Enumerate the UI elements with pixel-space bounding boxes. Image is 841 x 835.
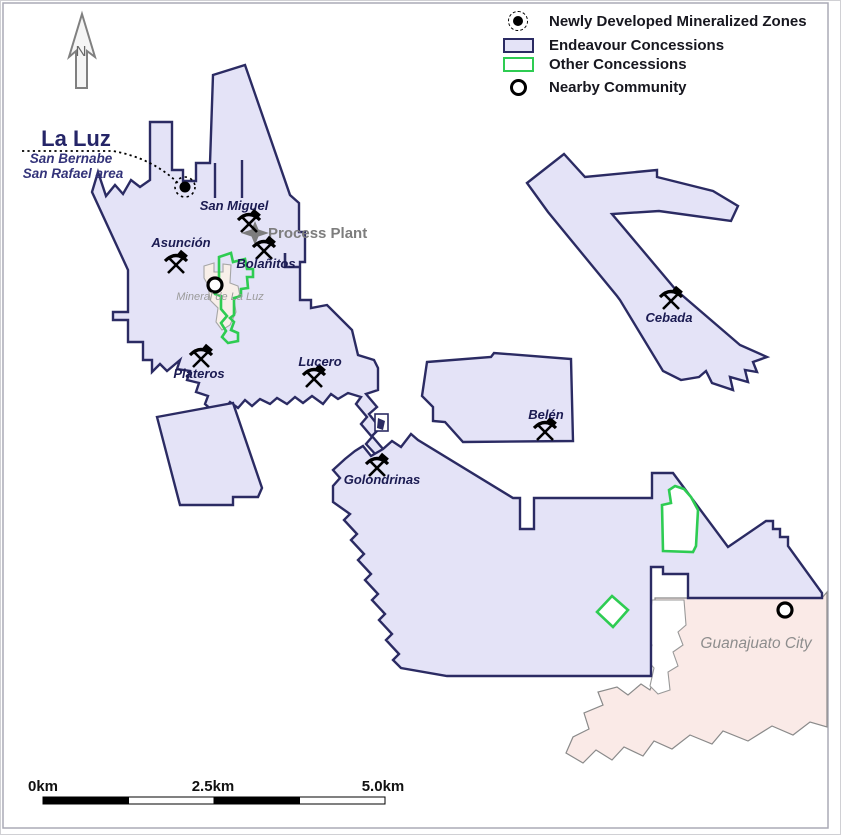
scale-label-mid: 2.5km — [192, 778, 235, 795]
mine-label-asuncion: Asunción — [150, 235, 210, 250]
endeavour-concession-parallelogram — [157, 403, 262, 505]
mine-label-golondrinas: Golondrinas — [344, 472, 421, 487]
mine-label-bolanitos: Bolañitos — [236, 256, 295, 271]
mineralized-zone-icon — [508, 11, 528, 31]
community-label-mineral-de-la-luz: Mineral de La Luz — [176, 291, 264, 303]
community-marker-mineral-de-la-luz — [208, 278, 222, 292]
other-swatch-icon — [503, 57, 534, 72]
community-swatch-icon — [510, 79, 527, 96]
scale-bar: 0km 2.5km 5.0km — [28, 778, 404, 804]
endeavour-swatch-icon — [503, 38, 534, 53]
scale-label-end: 5.0km — [362, 778, 405, 795]
endeavour-concession-belen — [422, 353, 573, 442]
mine-label-san-miguel: San Miguel — [200, 198, 269, 213]
legend-item-endeavour-concessions: Endeavour Concessions — [500, 37, 807, 54]
legend-item-nearby-community: Nearby Community — [500, 79, 807, 96]
la-luz-subtitle-2: San Rafael area — [23, 166, 124, 181]
north-arrow-label: N — [76, 43, 87, 60]
legend-label: Endeavour Concessions — [549, 37, 724, 54]
endeavour-concession-cebada — [527, 154, 767, 390]
mine-label-cebada: Cebada — [646, 310, 693, 325]
north-arrow: N — [69, 14, 95, 88]
legend-item-other-concessions: Other Concessions — [500, 56, 807, 73]
mine-label-lucero: Lucero — [298, 354, 341, 369]
legend: Newly Developed Mineralized Zones Endeav… — [500, 11, 807, 96]
scale-label-start: 0km — [28, 778, 58, 795]
la-luz-title: La Luz — [41, 126, 111, 151]
la-luz-subtitle-1: San Bernabe — [30, 151, 113, 166]
community-marker-guanajuato-city — [778, 603, 792, 617]
legend-label: Newly Developed Mineralized Zones — [549, 13, 807, 30]
mine-label-plateros: Plateros — [173, 366, 224, 381]
map-canvas: Newly Developed Mineralized Zones Endeav… — [0, 0, 841, 835]
legend-label: Nearby Community — [549, 79, 687, 96]
process-plant-label: Process Plant — [268, 225, 367, 242]
mine-label-belen: Belén — [528, 407, 563, 422]
legend-item-mineralized-zones: Newly Developed Mineralized Zones — [500, 11, 807, 31]
community-label-guanajuato-city: Guanajuato City — [700, 635, 812, 652]
legend-label: Other Concessions — [549, 56, 687, 73]
map-svg: N La Luz San Bernabe San Rafael area Pro… — [0, 0, 841, 835]
